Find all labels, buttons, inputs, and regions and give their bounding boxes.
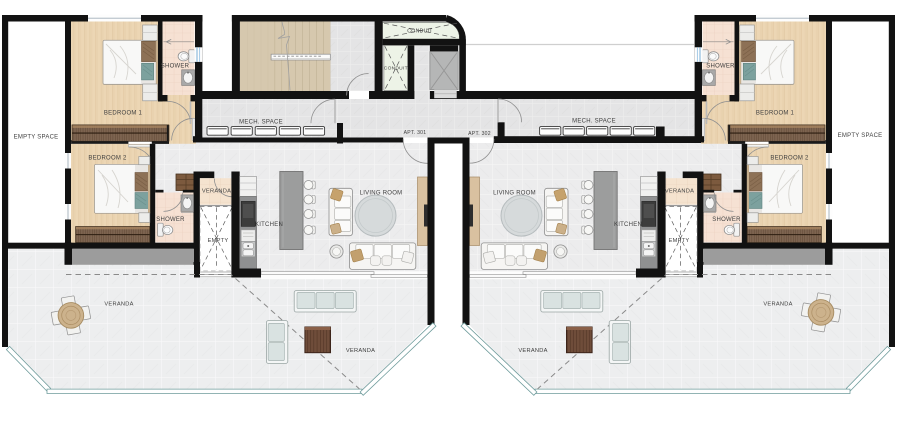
svg-text:SHOWER: SHOWER [156,217,185,223]
svg-text:APT. 302: APT. 302 [468,131,491,137]
svg-text:VERANDA: VERANDA [202,188,231,194]
svg-text:SHOWER: SHOWER [161,63,190,69]
svg-text:APT. 301: APT. 301 [404,130,427,136]
svg-text:EMPTY: EMPTY [208,238,229,244]
svg-text:VERANDA: VERANDA [665,188,694,194]
svg-text:MECH. SPACE: MECH. SPACE [239,119,283,125]
svg-text:EMPTY SPACE: EMPTY SPACE [838,133,883,139]
svg-text:MECH. SPACE: MECH. SPACE [572,119,616,125]
svg-text:LIVING ROOM: LIVING ROOM [493,191,536,197]
svg-text:EMPTY: EMPTY [669,238,690,244]
svg-text:EMPTY SPACE: EMPTY SPACE [14,135,59,141]
svg-text:KITCHEN: KITCHEN [255,222,283,228]
svg-text:VERANDA: VERANDA [518,348,547,354]
svg-text:LIVING ROOM: LIVING ROOM [360,191,403,197]
svg-text:BEDROOM 2: BEDROOM 2 [770,155,809,161]
svg-text:KITCHEN: KITCHEN [614,222,642,228]
svg-text:VERANDA: VERANDA [763,301,792,307]
svg-text:VERANDA: VERANDA [346,348,375,354]
svg-text:BEDROOM 1: BEDROOM 1 [104,110,143,116]
svg-text:BEDROOM 2: BEDROOM 2 [88,155,127,161]
svg-text:SHOWER: SHOWER [712,217,741,223]
svg-text:VERANDA: VERANDA [104,301,133,307]
svg-text:CONDUIT: CONDUIT [407,29,433,35]
svg-text:CONDUIT: CONDUIT [384,66,408,72]
svg-text:BEDROOM 1: BEDROOM 1 [756,110,795,116]
svg-text:SHOWER: SHOWER [706,63,735,69]
